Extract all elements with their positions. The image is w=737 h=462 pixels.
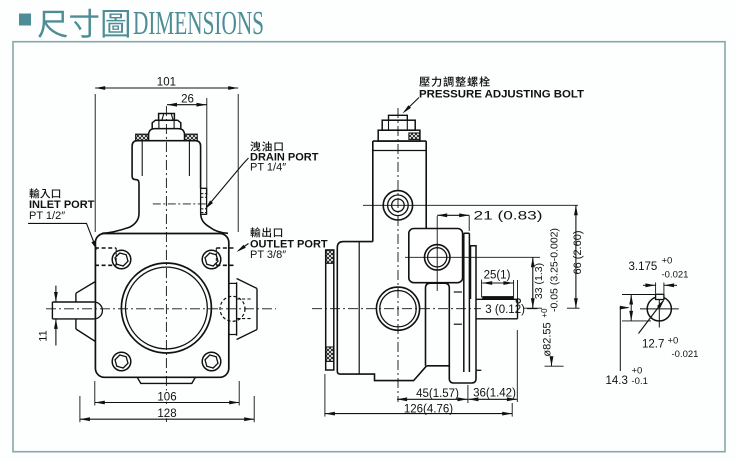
svg-text:126(4.76): 126(4.76) bbox=[404, 404, 453, 416]
svg-text:106: 106 bbox=[157, 392, 176, 404]
svg-text:-0.05 (3.25-0.002): -0.05 (3.25-0.002) bbox=[549, 228, 561, 312]
svg-text:3.175: 3.175 bbox=[629, 261, 658, 273]
svg-text:66 (2.60): 66 (2.60) bbox=[572, 230, 584, 274]
svg-text:PT 1/4″: PT 1/4″ bbox=[250, 162, 286, 174]
svg-text:25(1): 25(1) bbox=[484, 269, 511, 281]
svg-text:14.3: 14.3 bbox=[606, 375, 628, 387]
svg-text:-0.021: -0.021 bbox=[672, 349, 699, 360]
svg-text:ø82.55: ø82.55 bbox=[542, 322, 554, 356]
svg-text:PRESSURE ADJUSTING BOLT: PRESSURE ADJUSTING BOLT bbox=[419, 89, 584, 101]
svg-text:-0.021: -0.021 bbox=[662, 270, 689, 281]
svg-text:36(1.42): 36(1.42) bbox=[473, 387, 516, 399]
svg-text:12.7: 12.7 bbox=[642, 338, 664, 350]
svg-text:+0: +0 bbox=[662, 256, 673, 267]
svg-text:33 (1.3): 33 (1.3) bbox=[533, 263, 545, 299]
svg-text:+0: +0 bbox=[632, 365, 643, 376]
svg-text:45(1.57): 45(1.57) bbox=[416, 388, 459, 400]
svg-text:+0: +0 bbox=[540, 308, 549, 318]
svg-text:DIMENSIONS: DIMENSIONS bbox=[133, 5, 264, 42]
svg-text:21 (0.83): 21 (0.83) bbox=[474, 211, 543, 223]
svg-text:+0: +0 bbox=[668, 336, 679, 347]
svg-text:PT 1/2″: PT 1/2″ bbox=[29, 210, 65, 222]
svg-text:26: 26 bbox=[181, 94, 194, 106]
svg-text:11: 11 bbox=[38, 330, 50, 341]
svg-text:PT 3/8″: PT 3/8″ bbox=[250, 249, 286, 261]
svg-text:-0.1: -0.1 bbox=[632, 376, 648, 387]
svg-text:128: 128 bbox=[157, 408, 176, 420]
svg-text:101: 101 bbox=[157, 76, 176, 88]
svg-text:3 (0.12): 3 (0.12) bbox=[485, 304, 525, 316]
